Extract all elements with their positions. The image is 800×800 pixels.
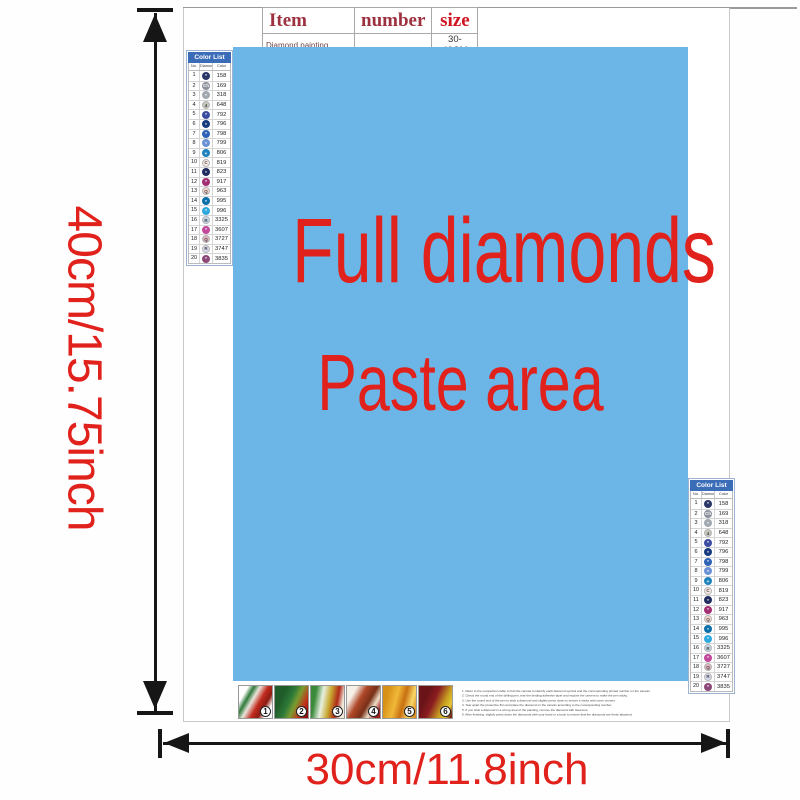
dmc-color-dot: *	[202, 178, 210, 186]
instructions-text: 1. Refer to the comparison table to find…	[462, 689, 714, 717]
color-list-row: 10C819	[189, 157, 230, 167]
dmc-code: 798	[715, 559, 732, 565]
diamond-symbol-icon: *	[200, 120, 213, 129]
diamond-symbol-icon: *	[702, 548, 715, 557]
dmc-color-dot: *	[704, 635, 712, 643]
row-number: 3	[691, 519, 702, 528]
dmc-color-dot: Ch	[202, 82, 210, 90]
col-no: No.	[189, 63, 200, 70]
color-list-row: 2Ch169	[691, 509, 732, 519]
color-list-row: 9+806	[189, 148, 230, 158]
dmc-color-dot: *	[704, 500, 712, 508]
dmc-code: 995	[213, 198, 230, 204]
diamond-symbol-icon: C	[200, 158, 213, 167]
row-number: 12	[189, 178, 200, 187]
dmc-color-dot: *	[202, 255, 210, 263]
dmc-color-dot: Ch	[704, 510, 712, 518]
dmc-code: 996	[715, 636, 732, 642]
arrow-down-icon	[143, 681, 167, 709]
color-list-row: 8*799	[189, 138, 230, 148]
diamond-symbol-icon: *	[200, 197, 213, 206]
dmc-code: 158	[213, 73, 230, 79]
dmc-code: 169	[715, 511, 732, 517]
diamond-symbol-icon: 4	[200, 101, 213, 110]
diamond-symbol-icon: +	[200, 149, 213, 158]
color-list-row: 9+806	[691, 576, 732, 586]
color-list-body: 1*1582Ch1693*318446485*7926*7967*7988*79…	[188, 71, 231, 264]
dmc-code: 169	[213, 83, 230, 89]
dmc-code: 3727	[715, 664, 732, 670]
dmc-code: 648	[715, 530, 732, 536]
row-number: 4	[189, 101, 200, 110]
dmc-code: 3835	[213, 256, 230, 262]
dmc-code: 819	[213, 160, 230, 166]
color-list-title: Color List	[188, 52, 231, 63]
step-thumbnail: 4	[346, 685, 381, 719]
diamond-symbol-icon: *	[702, 654, 715, 663]
step-number-badge: 5	[404, 706, 415, 717]
dmc-color-dot: Q	[202, 235, 210, 243]
row-number: 10	[189, 158, 200, 167]
color-list-row: 6*796	[189, 119, 230, 129]
paste-area: Full diamonds Paste area	[233, 47, 688, 681]
diamond-symbol-icon: *	[702, 567, 715, 576]
dmc-color-dot: Q	[202, 187, 210, 195]
dmc-color-dot: R	[704, 673, 712, 681]
color-list-row: 6*796	[691, 547, 732, 557]
dmc-color-dot: Q	[704, 663, 712, 671]
color-list-row: 5*792	[189, 109, 230, 119]
diamond-symbol-icon: *	[702, 625, 715, 634]
dmc-code: 963	[715, 616, 732, 622]
row-number: 18	[189, 235, 200, 244]
color-list-row: 11*823	[189, 167, 230, 177]
row-number: 2	[189, 82, 200, 91]
dmc-code: 3835	[715, 684, 732, 690]
dmc-code: 996	[213, 208, 230, 214]
diamond-symbol-icon: *	[200, 139, 213, 148]
dmc-code: 796	[213, 121, 230, 127]
col-no: No.	[691, 491, 702, 498]
dmc-code: 3607	[715, 655, 732, 661]
dmc-code: 792	[213, 112, 230, 118]
color-list-row: 20*3835	[189, 253, 230, 263]
color-list-row: 44648	[691, 528, 732, 538]
color-list-row: 44648	[189, 100, 230, 110]
diamond-symbol-icon: +	[702, 577, 715, 586]
row-number: 9	[691, 577, 702, 586]
dmc-code: 3325	[213, 217, 230, 223]
dmc-code: 648	[213, 102, 230, 108]
arrow-up-icon	[143, 14, 167, 42]
diamond-symbol-icon: Ch	[702, 510, 715, 519]
step-number-badge: 1	[260, 706, 271, 717]
step-number-badge: 6	[440, 706, 451, 717]
diamond-symbol-icon: *	[200, 178, 213, 187]
color-list-row: 7*798	[189, 129, 230, 139]
diamond-symbol-icon: *	[702, 606, 715, 615]
row-number: 6	[189, 120, 200, 129]
dmc-color-dot: *	[202, 168, 210, 176]
color-list-row: 19R3747	[189, 244, 230, 254]
height-dim-cap-bottom	[137, 711, 173, 715]
dmc-code: 798	[213, 131, 230, 137]
color-list-columns: No. Diamond Color	[188, 63, 231, 71]
instructions-block: 1. Refer to the comparison table to find…	[462, 689, 714, 723]
color-list-row: 1*158	[691, 499, 732, 509]
dmc-color-dot: *	[202, 139, 210, 147]
dmc-color-dot: *	[704, 539, 712, 547]
color-list-left: Color List No. Diamond Color 1*1582Ch169…	[186, 50, 233, 266]
height-dimension-label: 40cm/15.75inch	[57, 206, 112, 531]
diamond-symbol-icon: *	[702, 519, 715, 528]
dmc-color-dot: *	[704, 567, 712, 575]
row-number: 5	[691, 538, 702, 547]
row-number: 19	[189, 245, 200, 254]
color-list-row: 16R3325	[691, 643, 732, 653]
color-list-row: 11*823	[691, 595, 732, 605]
color-list-row: 3*318	[691, 518, 732, 528]
dmc-code: 819	[715, 588, 732, 594]
dmc-code: 799	[213, 140, 230, 146]
width-dim-cap-right	[726, 729, 730, 758]
instruction-line: 6. After finishing, slightly press down …	[462, 713, 714, 718]
dmc-code: 792	[715, 540, 732, 546]
row-number: 11	[189, 168, 200, 177]
row-number: 10	[691, 586, 702, 595]
dmc-code: 318	[715, 520, 732, 526]
color-list-row: 17*3607	[189, 225, 230, 235]
dmc-color-dot: *	[202, 197, 210, 205]
paste-area-title: Full diamonds	[292, 205, 629, 297]
dmc-color-dot: 4	[202, 101, 210, 109]
row-number: 13	[691, 615, 702, 624]
dmc-code: 158	[715, 501, 732, 507]
dmc-color-dot: *	[202, 111, 210, 119]
color-list-right: Color List No. Diamond Color 1*1582Ch169…	[688, 478, 735, 694]
color-list-row: 13Q963	[189, 186, 230, 196]
diamond-symbol-icon: *	[200, 130, 213, 139]
dmc-color-dot: C	[704, 587, 712, 595]
row-number: 17	[189, 226, 200, 235]
row-number: 8	[189, 139, 200, 148]
dmc-color-dot: *	[202, 72, 210, 80]
dmc-code: 3747	[715, 674, 732, 680]
row-number: 6	[691, 548, 702, 557]
dmc-code: 3607	[213, 227, 230, 233]
color-list-columns: No. Diamond Color	[690, 491, 733, 499]
row-number: 3	[189, 91, 200, 100]
dmc-code: 823	[715, 597, 732, 603]
arrow-left-icon	[164, 733, 189, 753]
dmc-color-dot: *	[704, 548, 712, 556]
canvas-page: Item number size Diamond painting 30-40C…	[183, 8, 730, 722]
dmc-code: 823	[213, 169, 230, 175]
dmc-color-dot: *	[704, 625, 712, 633]
diamond-symbol-icon: R	[200, 245, 213, 254]
step-thumbnail: 2	[274, 685, 309, 719]
dmc-color-dot: +	[704, 577, 712, 585]
dmc-code: 799	[715, 568, 732, 574]
step-thumbnail: 6	[418, 685, 453, 719]
diamond-symbol-icon: Q	[200, 235, 213, 244]
diamond-symbol-icon: *	[702, 538, 715, 547]
diamond-symbol-icon: *	[200, 91, 213, 100]
dmc-code: 318	[213, 92, 230, 98]
dmc-code: 3747	[213, 246, 230, 252]
row-number: 8	[691, 567, 702, 576]
dmc-color-dot: *	[202, 120, 210, 128]
row-number: 7	[189, 130, 200, 139]
row-number: 19	[691, 673, 702, 682]
color-list-row: 12*917	[189, 177, 230, 187]
dmc-color-dot: *	[704, 519, 712, 527]
row-number: 11	[691, 596, 702, 605]
dmc-color-dot: C	[202, 159, 210, 167]
row-number: 5	[189, 110, 200, 119]
diamond-symbol-icon: 4	[702, 529, 715, 538]
row-number: 2	[691, 510, 702, 519]
col-color: Color	[213, 63, 230, 70]
diamond-symbol-icon: *	[200, 168, 213, 177]
color-list-row: 1*158	[189, 71, 230, 81]
col-diamond: Diamond	[200, 63, 213, 70]
color-list-row: 13Q963	[691, 614, 732, 624]
row-number: 15	[691, 634, 702, 643]
dmc-color-dot: *	[202, 91, 210, 99]
dmc-code: 917	[213, 179, 230, 185]
dmc-color-dot: *	[704, 558, 712, 566]
dmc-color-dot: *	[704, 596, 712, 604]
step-thumbnails: 123456	[238, 685, 453, 719]
diamond-symbol-icon: Q	[702, 615, 715, 624]
width-dim-cap-left	[158, 729, 162, 758]
dmc-color-dot: *	[202, 207, 210, 215]
color-list-row: 14*995	[691, 624, 732, 634]
diamond-symbol-icon: *	[702, 596, 715, 605]
color-list-row: 8*799	[691, 566, 732, 576]
step-thumbnail: 3	[310, 685, 345, 719]
size-header: size	[432, 8, 478, 34]
color-list-row: 18Q3727	[189, 234, 230, 244]
row-number: 14	[189, 197, 200, 206]
diamond-symbol-icon: R	[702, 644, 715, 653]
color-list-row: 7*798	[691, 557, 732, 567]
row-number: 17	[691, 654, 702, 663]
col-color: Color	[715, 491, 732, 498]
dmc-color-dot: *	[202, 226, 210, 234]
color-list-row: 15*996	[189, 205, 230, 215]
diamond-symbol-icon: *	[200, 110, 213, 119]
row-number: 16	[189, 216, 200, 225]
dmc-color-dot: R	[202, 245, 210, 253]
row-number: 9	[189, 149, 200, 158]
color-list-row: 10C819	[691, 585, 732, 595]
step-number-badge: 3	[332, 706, 343, 717]
diamond-symbol-icon: *	[200, 71, 213, 81]
row-number: 1	[691, 499, 702, 509]
dmc-color-dot: *	[202, 130, 210, 138]
row-number: 4	[691, 529, 702, 538]
row-number: 15	[189, 206, 200, 215]
dmc-color-dot: +	[202, 149, 210, 157]
dmc-color-dot: R	[202, 216, 210, 224]
dmc-color-dot: 4	[704, 529, 712, 537]
diamond-symbol-icon: *	[702, 499, 715, 509]
color-list-row: 12*917	[691, 605, 732, 615]
color-list-row: 3*318	[189, 90, 230, 100]
color-list-row: 16R3325	[189, 215, 230, 225]
diamond-symbol-icon: R	[200, 216, 213, 225]
dmc-color-dot: *	[704, 654, 712, 662]
color-list-row: 15*996	[691, 633, 732, 643]
item-header: Item	[263, 8, 355, 34]
dmc-code: 963	[213, 188, 230, 194]
col-diamond: Diamond	[702, 491, 715, 498]
color-list-title: Color List	[690, 480, 733, 491]
dmc-code: 3727	[213, 236, 230, 242]
dmc-color-dot: *	[704, 606, 712, 614]
dmc-code: 917	[715, 607, 732, 613]
diamond-symbol-icon: C	[702, 586, 715, 595]
color-list-row: 19R3747	[691, 672, 732, 682]
step-number-badge: 2	[296, 706, 307, 717]
dmc-code: 3325	[715, 645, 732, 651]
row-number: 1	[189, 71, 200, 81]
item-table-header-row: Item number size	[263, 8, 478, 34]
step-number-badge: 4	[368, 706, 379, 717]
color-list-body: 1*1582Ch1693*318446485*7926*7967*7988*79…	[690, 499, 733, 692]
diamond-symbol-icon: *	[200, 254, 213, 263]
step-thumbnail: 5	[382, 685, 417, 719]
dmc-color-dot: R	[704, 644, 712, 652]
dmc-code: 806	[213, 150, 230, 156]
dmc-code: 995	[715, 626, 732, 632]
diamond-symbol-icon: *	[200, 226, 213, 235]
row-number: 7	[691, 558, 702, 567]
dmc-code: 806	[715, 578, 732, 584]
diamond-symbol-icon: *	[200, 206, 213, 215]
number-header: number	[355, 8, 432, 34]
color-list-row: 17*3607	[691, 653, 732, 663]
color-list-row: 2Ch169	[189, 81, 230, 91]
diamond-symbol-icon: Q	[702, 663, 715, 672]
dmc-color-dot: Q	[704, 615, 712, 623]
step-thumbnail: 1	[238, 685, 273, 719]
height-dim-cap-top	[137, 8, 173, 12]
color-list-row: 5*792	[691, 537, 732, 547]
row-number: 20	[189, 254, 200, 263]
color-list-row: 14*995	[189, 196, 230, 206]
diamond-symbol-icon: *	[702, 634, 715, 643]
diamond-symbol-icon: R	[702, 673, 715, 682]
width-dimension-label: 30cm/11.8inch	[306, 745, 589, 795]
row-number: 12	[691, 606, 702, 615]
row-number: 18	[691, 663, 702, 672]
paste-area-subtitle: Paste area	[292, 343, 629, 423]
row-number: 13	[189, 187, 200, 196]
product-diagram: Item number size Diamond painting 30-40C…	[0, 0, 800, 800]
row-number: 14	[691, 625, 702, 634]
height-dim-line	[154, 13, 157, 711]
dmc-code: 796	[715, 549, 732, 555]
diamond-symbol-icon: Ch	[200, 82, 213, 91]
arrow-right-icon	[701, 733, 726, 753]
diamond-symbol-icon: Q	[200, 187, 213, 196]
color-list-row: 18Q3727	[691, 662, 732, 672]
row-number: 16	[691, 644, 702, 653]
diamond-symbol-icon: *	[702, 558, 715, 567]
